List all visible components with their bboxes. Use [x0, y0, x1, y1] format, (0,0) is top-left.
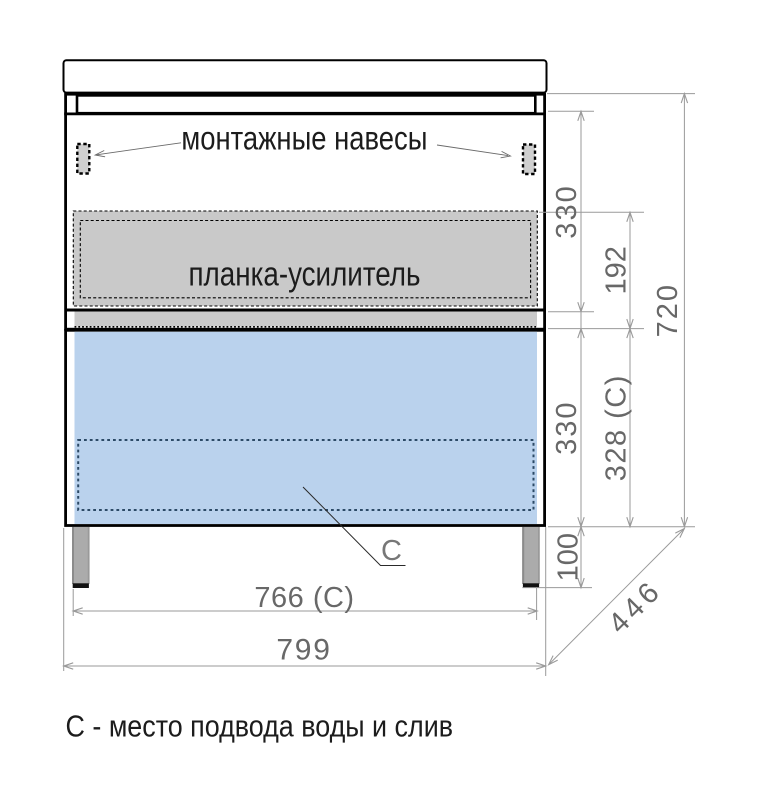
svg-text:446: 446 [602, 574, 668, 640]
svg-text:планка-усилитель: планка-усилитель [189, 256, 421, 294]
svg-text:330: 330 [551, 184, 583, 238]
svg-text:328 (C): 328 (C) [601, 374, 633, 481]
svg-text:C: C [381, 535, 402, 567]
svg-text:799: 799 [276, 634, 331, 667]
svg-text:720: 720 [652, 283, 684, 337]
svg-text:192: 192 [601, 246, 633, 294]
svg-text:100: 100 [553, 533, 585, 581]
svg-text:монтажные навесы: монтажные навесы [181, 120, 427, 157]
svg-text:C - место подвода воды и слив: C - место подвода воды и слив [66, 709, 454, 744]
svg-text:330: 330 [551, 401, 583, 455]
svg-text:766 (C): 766 (C) [254, 582, 354, 614]
